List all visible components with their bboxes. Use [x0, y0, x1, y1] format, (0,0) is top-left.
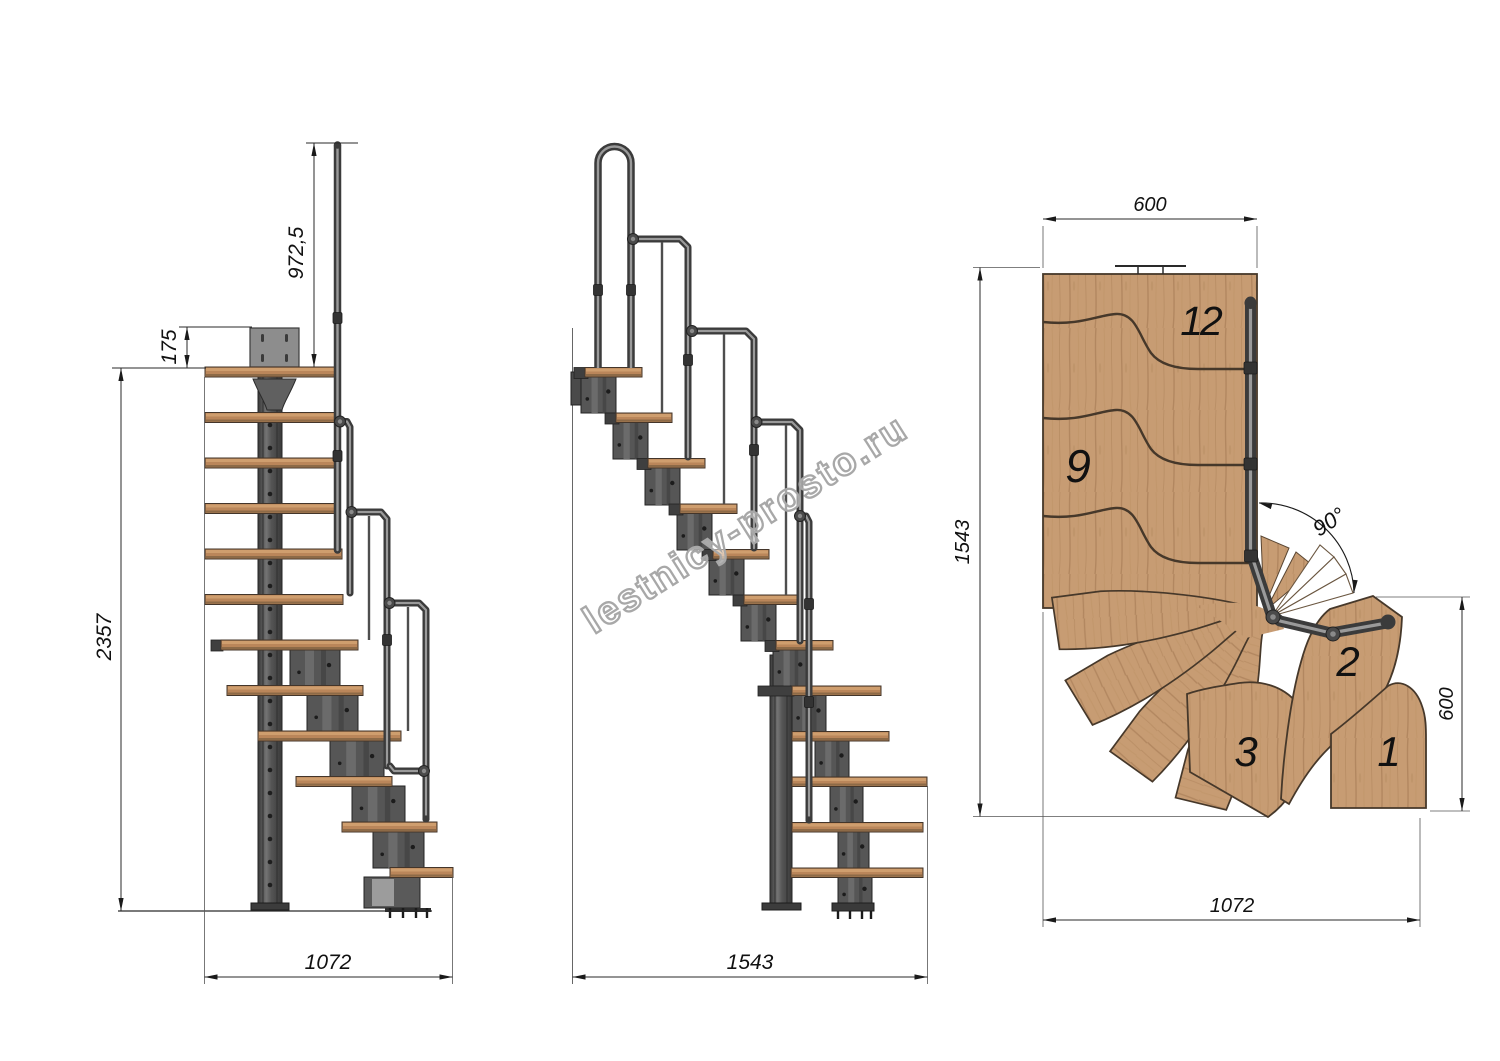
- svg-text:600: 600: [1133, 194, 1166, 216]
- svg-text:2: 2: [1335, 638, 1359, 685]
- svg-text:3: 3: [1234, 728, 1257, 775]
- svg-text:2357: 2357: [93, 612, 116, 661]
- svg-text:1: 1: [1377, 728, 1400, 775]
- svg-text:972,5: 972,5: [285, 226, 308, 279]
- svg-text:1072: 1072: [1210, 895, 1255, 917]
- svg-text:12: 12: [1180, 298, 1223, 344]
- svg-text:1072: 1072: [305, 951, 352, 974]
- svg-text:175: 175: [158, 329, 181, 364]
- svg-text:1543: 1543: [727, 951, 774, 974]
- svg-text:9: 9: [1065, 440, 1091, 492]
- svg-text:600: 600: [1436, 687, 1458, 720]
- svg-text:1543: 1543: [952, 520, 974, 565]
